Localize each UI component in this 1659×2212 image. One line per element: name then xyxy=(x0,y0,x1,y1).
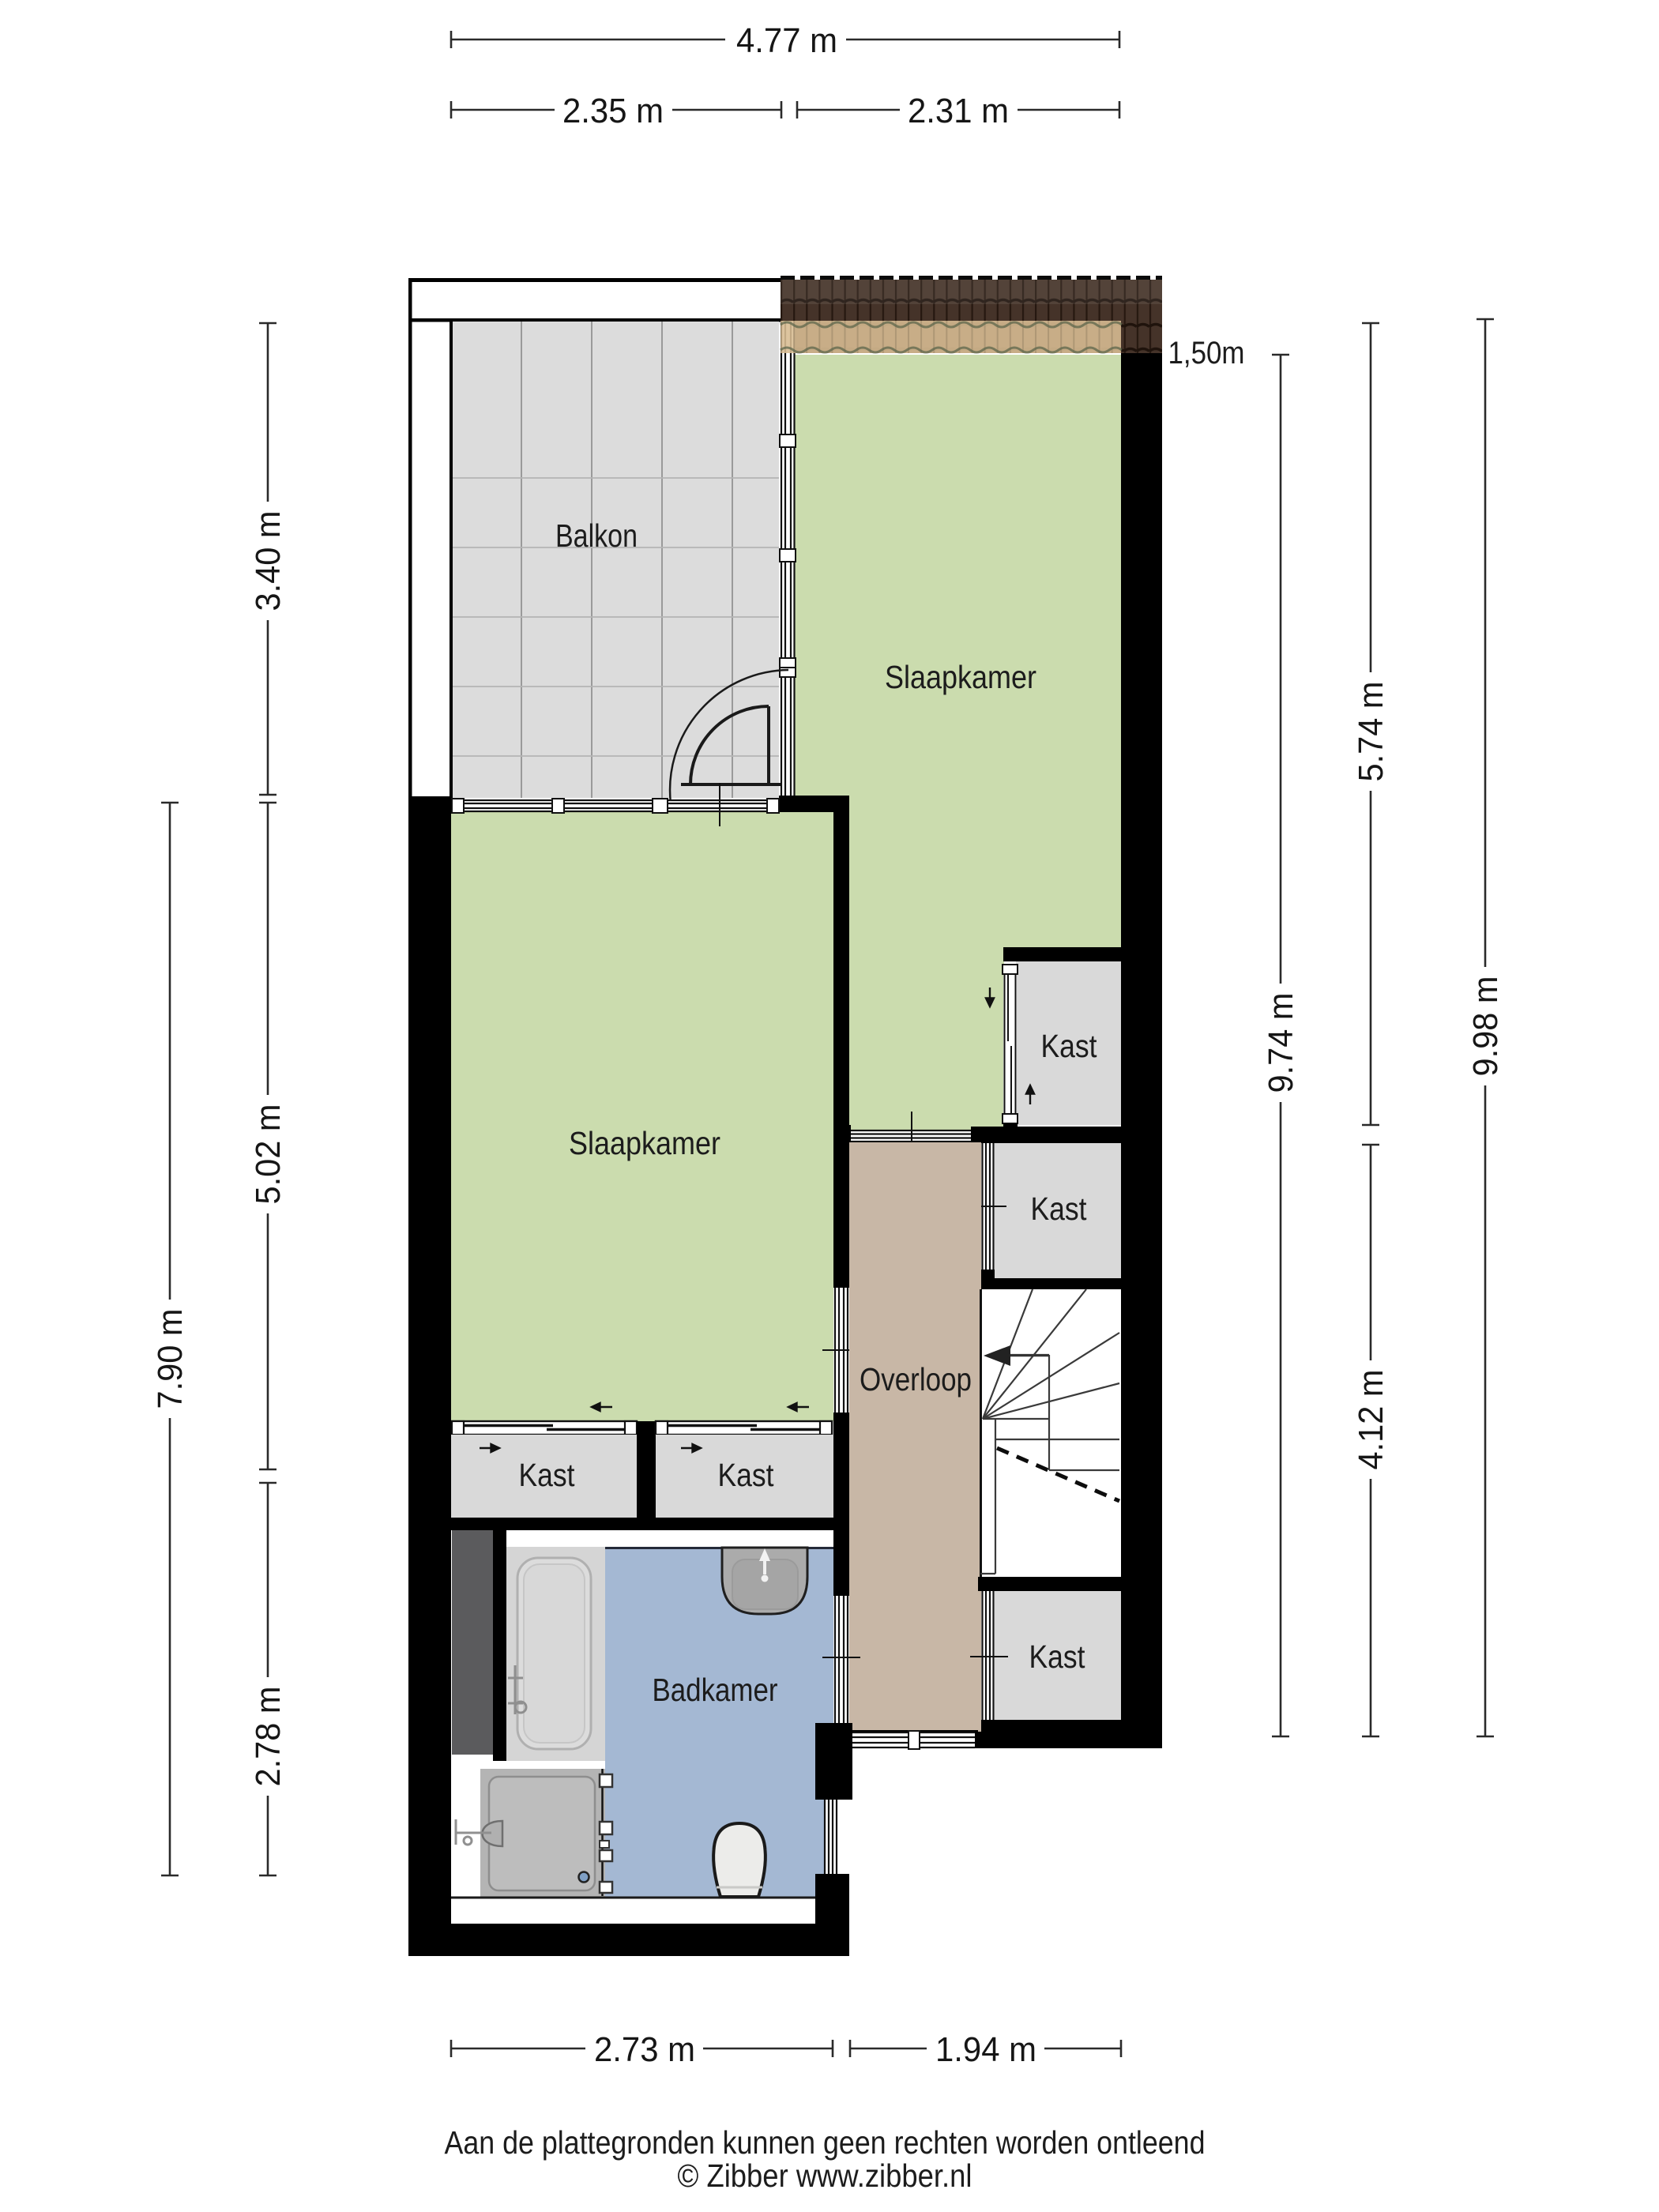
svg-text:9.74 m: 9.74 m xyxy=(1262,993,1300,1093)
svg-text:Kast: Kast xyxy=(1031,1191,1088,1227)
svg-text:Kast: Kast xyxy=(519,1457,576,1493)
svg-text:Badkamer: Badkamer xyxy=(653,1672,778,1708)
svg-text:1.94 m: 1.94 m xyxy=(935,2030,1036,2069)
svg-text:3.40 m: 3.40 m xyxy=(249,511,288,611)
svg-text:Kast: Kast xyxy=(1041,1028,1098,1064)
svg-text:2.78 m: 2.78 m xyxy=(249,1687,288,1787)
svg-text:Aan de plattegronden kunnen ge: Aan de plattegronden kunnen geen rechten… xyxy=(445,2124,1206,2161)
svg-text:Slaapkamer: Slaapkamer xyxy=(569,1125,720,1161)
svg-text:Overloop: Overloop xyxy=(860,1361,972,1398)
svg-text:4.12 m: 4.12 m xyxy=(1352,1370,1390,1470)
svg-text:Slaapkamer: Slaapkamer xyxy=(885,659,1036,695)
svg-text:9.98 m: 9.98 m xyxy=(1466,976,1505,1077)
svg-text:5.74 m: 5.74 m xyxy=(1352,682,1390,782)
svg-text:7.90 m: 7.90 m xyxy=(151,1309,190,1409)
svg-text:2.73 m: 2.73 m xyxy=(594,2030,695,2069)
svg-text:Balkon: Balkon xyxy=(555,517,638,554)
svg-text:Kast: Kast xyxy=(1029,1638,1086,1675)
svg-text:© Zibber www.zibber.nl: © Zibber www.zibber.nl xyxy=(678,2157,972,2194)
svg-text:2.35 m: 2.35 m xyxy=(562,92,664,130)
svg-text:5.02 m: 5.02 m xyxy=(249,1104,288,1205)
svg-text:2.31 m: 2.31 m xyxy=(908,92,1009,130)
svg-text:1,50m: 1,50m xyxy=(1168,336,1245,371)
svg-text:Kast: Kast xyxy=(718,1457,775,1493)
svg-text:4.77 m: 4.77 m xyxy=(736,21,837,60)
